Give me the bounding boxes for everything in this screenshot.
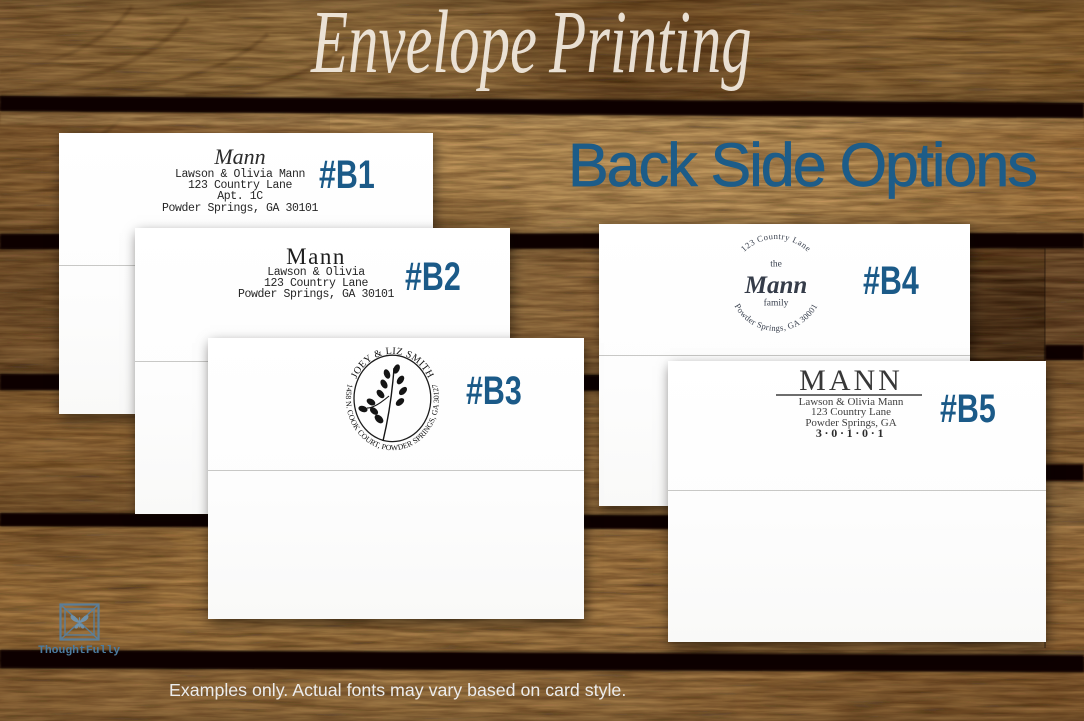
svg-text:123 Country Lane: 123 Country Lane xyxy=(739,231,814,254)
svg-text:Mann: Mann xyxy=(744,272,808,299)
svg-text:the: the xyxy=(770,260,782,270)
svg-text:JOEY & LIZ SMITH: JOEY & LIZ SMITH xyxy=(349,346,436,380)
svg-text:family: family xyxy=(764,298,789,309)
